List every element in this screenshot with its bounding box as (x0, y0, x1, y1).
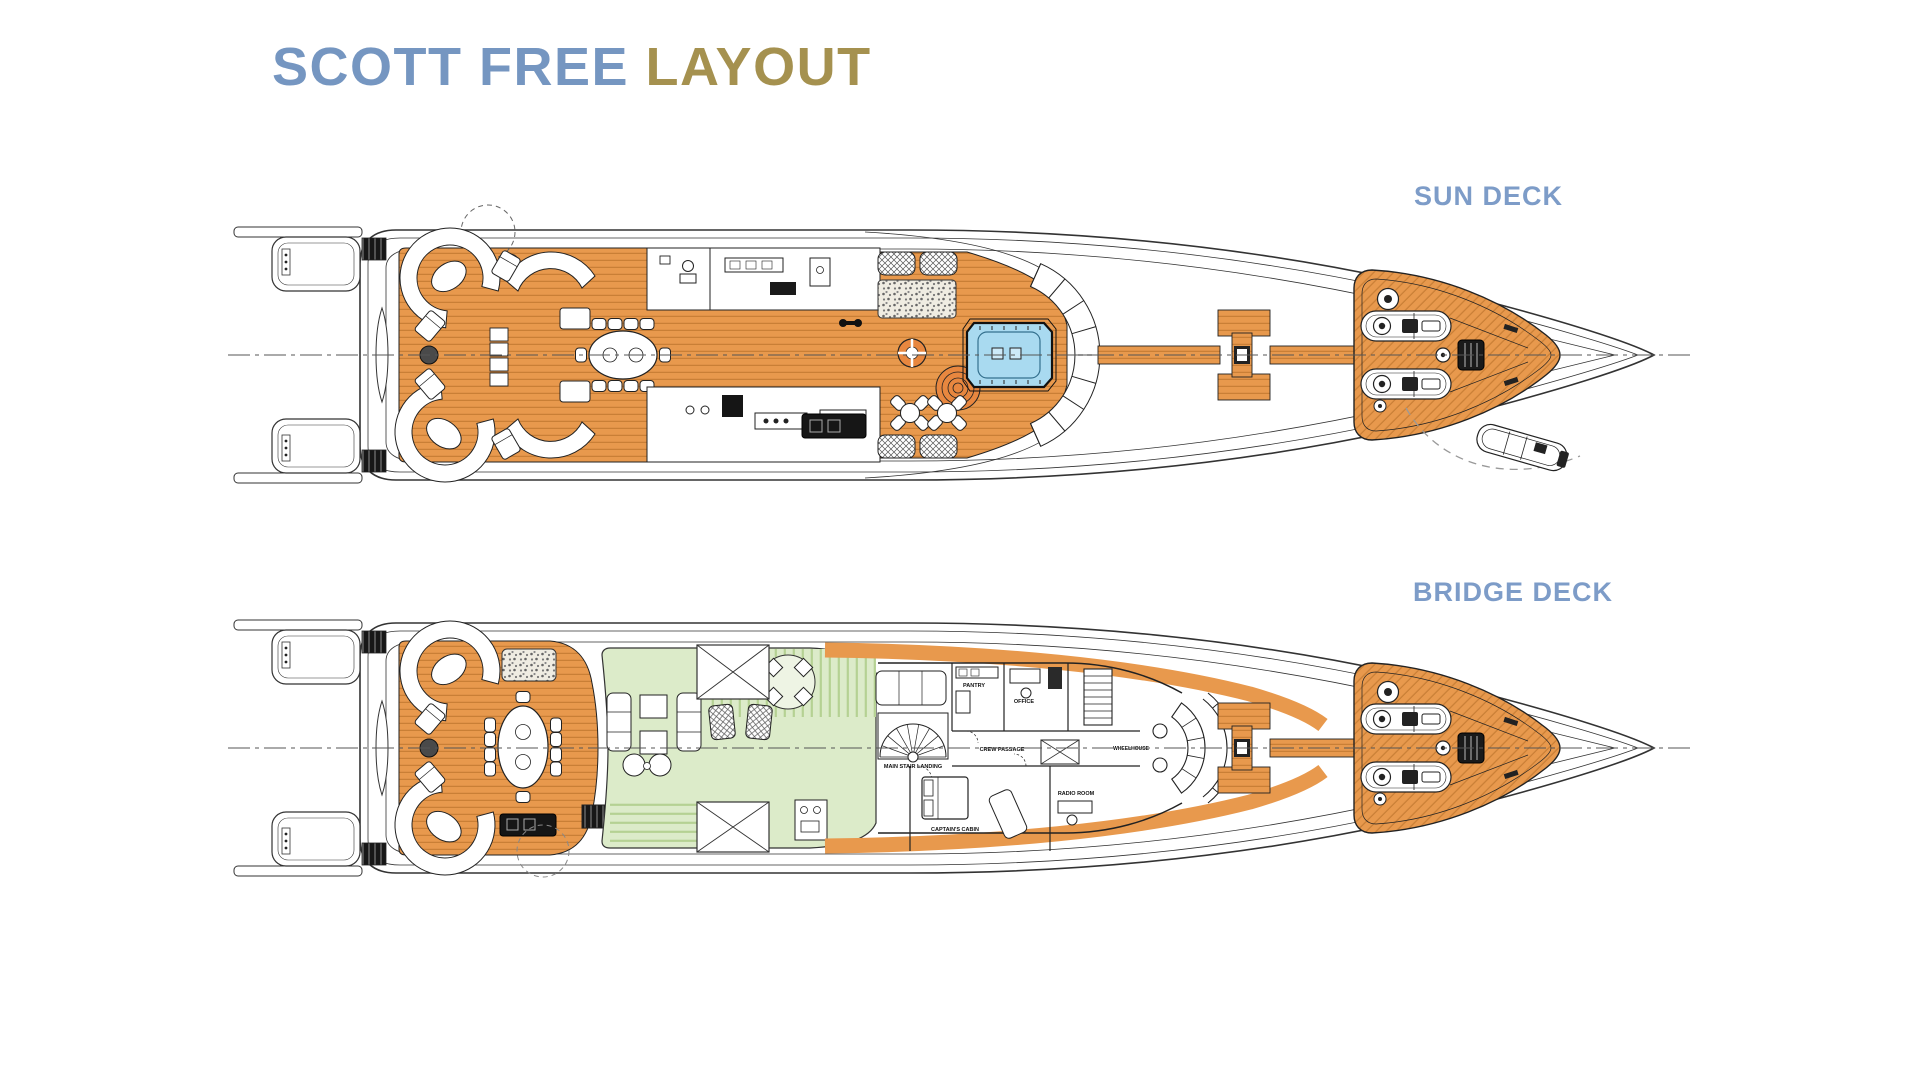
page-title: SCOTT FREE LAYOUT (272, 36, 872, 98)
coffee-table (640, 731, 667, 754)
bar-counter (802, 414, 866, 438)
captains-cabin-label: CAPTAIN'S CABIN (931, 827, 979, 833)
tub-chair (649, 754, 671, 776)
recliner-chair (708, 704, 735, 740)
pantry-label: PANTRY (963, 683, 985, 689)
title-boat-name: SCOTT FREE (272, 37, 629, 97)
radio-room-label: RADIO ROOM (1058, 791, 1095, 797)
spiral-staircase (878, 713, 948, 762)
sunpad (502, 649, 556, 681)
elevator (1041, 740, 1079, 764)
recliner-chair (745, 704, 772, 740)
stone-path (878, 280, 956, 318)
title-layout-word: LAYOUT (646, 37, 872, 97)
stair-shaft (697, 802, 769, 852)
coffee-table (640, 695, 667, 718)
bridge-deck-plan: MAIN STAIR LANDING CREW PASSAGE CAPTAIN'… (210, 600, 1710, 900)
stair-lobby-settee (876, 671, 946, 705)
pantry-kitchenette (795, 800, 827, 840)
wheelhouse-label: WHEELHOUSE (1113, 746, 1150, 752)
elevator (697, 645, 769, 699)
sofa (607, 693, 631, 751)
office-label: OFFICE (1014, 699, 1034, 705)
tub-chair (623, 754, 645, 776)
helm-chair (1153, 724, 1167, 738)
main-stair-landing-label: MAIN STAIR LANDING (884, 764, 942, 770)
crew-stairs (1084, 669, 1112, 725)
life-ring-icon (898, 339, 926, 367)
sofa (677, 693, 701, 751)
tender-boat (1474, 421, 1571, 474)
helm-chair (1153, 758, 1167, 772)
captains-bed (922, 777, 968, 819)
sun-deck-plan (210, 170, 1710, 510)
